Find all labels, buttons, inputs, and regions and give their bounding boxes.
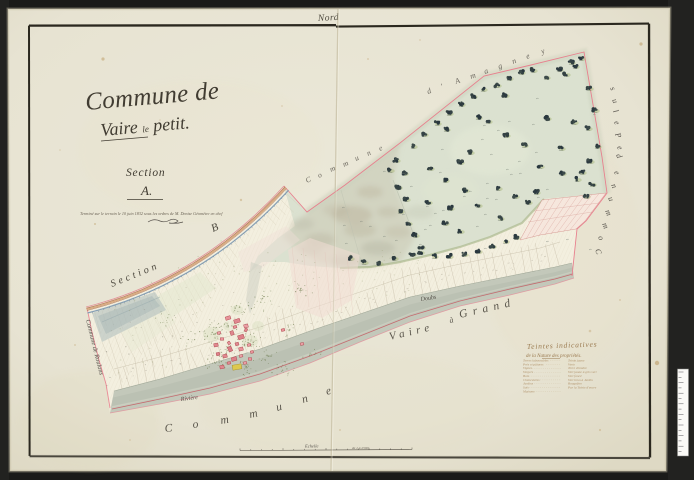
- svg-text:Nord: Nord: [317, 13, 340, 24]
- svg-text:Section: Section: [126, 167, 165, 179]
- svg-text:C: C: [164, 422, 173, 435]
- svg-text:de 1 à 2500: de 1 à 2500: [352, 446, 369, 450]
- svg-text:A.: A.: [140, 183, 152, 198]
- svg-text:Echelle: Echelle: [304, 444, 319, 449]
- svg-text:Par la Teinte d'encre: Par la Teinte d'encre: [567, 385, 597, 389]
- svg-text:Terminé sur le terrain le 10 j: Terminé sur le terrain le 10 juin 1832 s…: [80, 211, 223, 216]
- svg-text:Maisons: Maisons: [522, 389, 535, 393]
